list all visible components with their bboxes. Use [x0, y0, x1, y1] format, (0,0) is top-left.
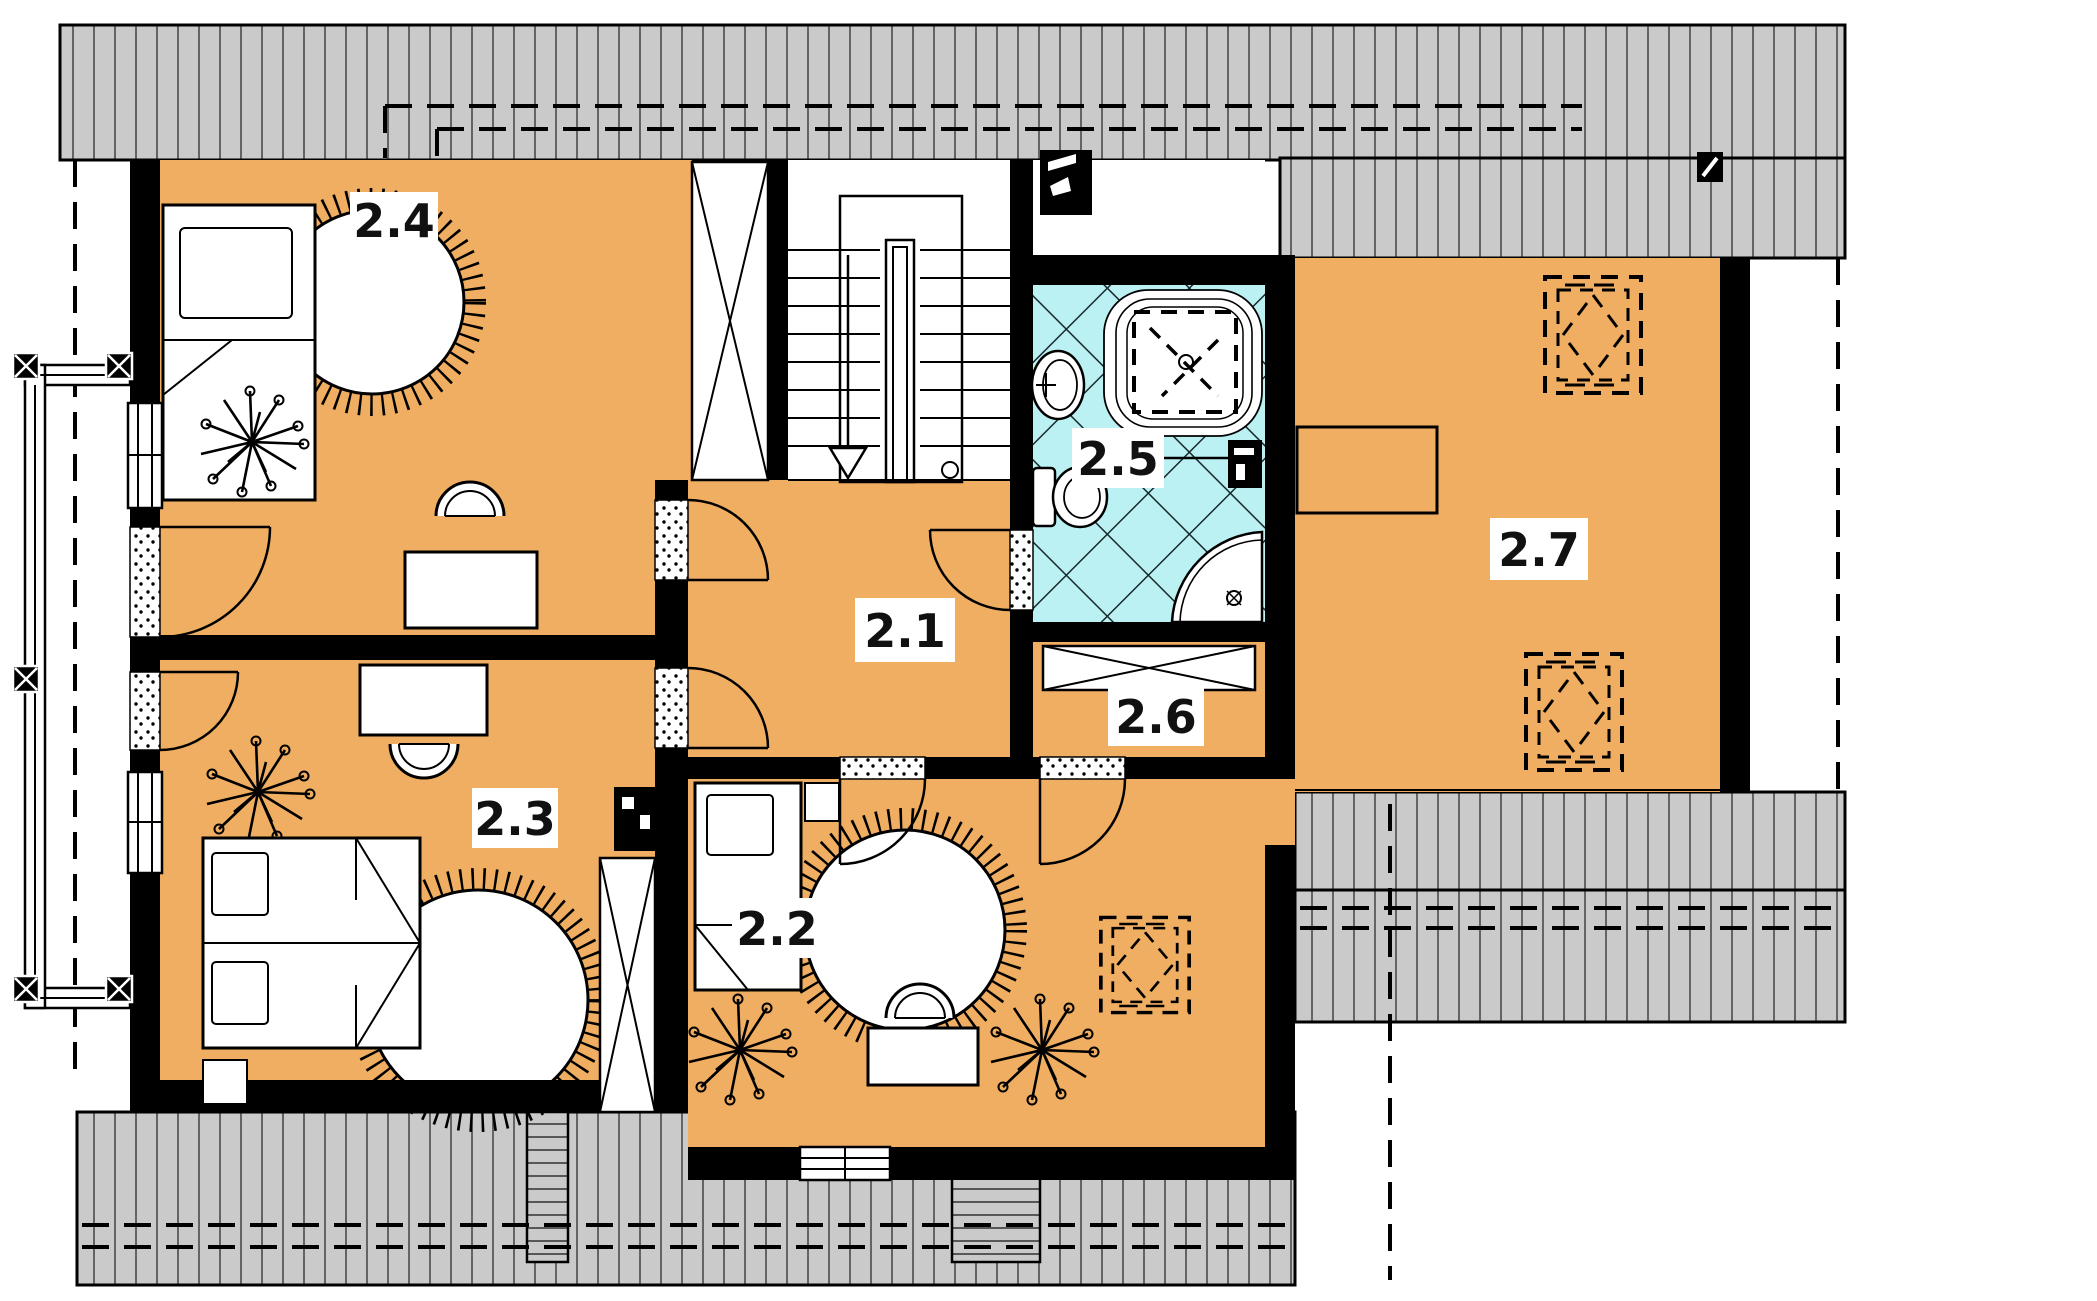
bathtub — [1104, 290, 1262, 436]
roof-right-upper — [1280, 158, 1845, 258]
room-label-2-4: 2.4 — [350, 192, 438, 250]
floorplan-attic-level: 2.4 2.1 2.5 2.6 2.7 2.3 2.2 — [0, 0, 2097, 1301]
wardrobe-2-6 — [1043, 646, 1255, 690]
roof-access-hatch — [1697, 152, 1723, 182]
wardrobe-next-to-2-4 — [692, 162, 768, 480]
wardrobe-2-3 — [600, 858, 655, 1112]
room-label-2-1: 2.1 — [855, 598, 955, 662]
room-label-2-6-text: 2.6 — [1115, 690, 1197, 744]
wall-bathroom-top — [1010, 255, 1295, 285]
wall-2-7-right — [1720, 258, 1750, 792]
window-left-2-3 — [128, 772, 162, 873]
wall-2-2-bottom — [688, 1147, 1295, 1180]
room-label-2-7: 2.7 — [1490, 518, 1588, 580]
wall-wardrobe-stairs — [768, 160, 788, 480]
wall-right-lower — [1265, 845, 1295, 1147]
room-label-2-5: 2.5 — [1072, 428, 1164, 488]
nightstand-2-2 — [805, 783, 839, 821]
roof-top-band — [60, 25, 1845, 160]
chimney-top — [1040, 150, 1092, 215]
window-bottom-2-2 — [800, 1147, 890, 1180]
room-2-1-floor — [688, 480, 1010, 779]
passage-to-2-7 — [1265, 779, 1295, 845]
room-label-2-1-text: 2.1 — [864, 604, 946, 658]
desk-2-3 — [360, 665, 487, 735]
floorplan-drawing: 2.4 2.1 2.5 2.6 2.7 2.3 2.2 — [0, 0, 2097, 1301]
room-label-2-5-text: 2.5 — [1077, 432, 1159, 486]
wall-hall-bathroom — [1010, 160, 1033, 779]
window-left-2-4 — [128, 403, 162, 508]
room-label-2-4-text: 2.4 — [353, 194, 435, 248]
dormer-left — [527, 1112, 568, 1262]
bed-2-2 — [695, 783, 801, 990]
room-label-2-7-text: 2.7 — [1498, 523, 1580, 577]
room-label-2-2-text: 2.2 — [736, 902, 818, 956]
wall-2-4-2-3-divider — [160, 635, 655, 660]
room-label-2-6: 2.6 — [1108, 688, 1204, 746]
dresser-2-3 — [614, 787, 658, 851]
desk-2-4 — [405, 552, 537, 628]
room-label-2-3: 2.3 — [472, 788, 558, 848]
wall-right-upper — [1265, 255, 1295, 779]
wall-hall-2-2 — [688, 757, 1265, 779]
balcony — [13, 353, 132, 1008]
desk-2-2 — [868, 1028, 978, 1085]
wall-bathroom-bottom — [1033, 622, 1265, 642]
room-label-2-3-text: 2.3 — [474, 792, 556, 846]
stair-handrail — [886, 240, 914, 482]
sink — [1032, 351, 1084, 419]
room-label-2-2: 2.2 — [732, 898, 822, 958]
